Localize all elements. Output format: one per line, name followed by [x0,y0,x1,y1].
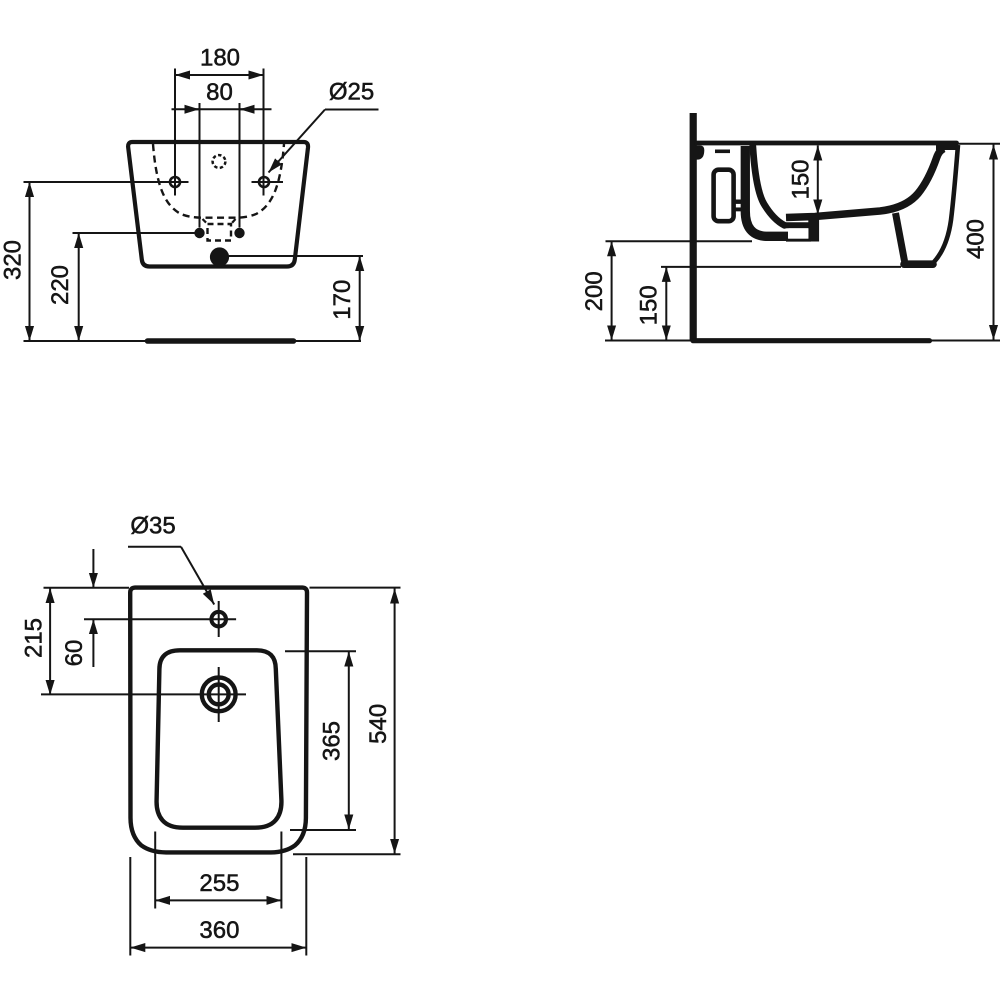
svg-text:540: 540 [365,704,392,744]
svg-text:320: 320 [0,240,27,280]
svg-text:80: 80 [206,79,233,106]
svg-text:400: 400 [962,219,989,259]
svg-text:200: 200 [581,271,608,311]
svg-text:180: 180 [200,45,240,72]
svg-text:255: 255 [199,870,239,897]
svg-text:Ø25: Ø25 [329,79,374,106]
svg-text:170: 170 [329,280,356,320]
svg-text:60: 60 [61,640,88,667]
svg-text:220: 220 [47,265,74,305]
svg-text:360: 360 [199,917,239,944]
svg-text:215: 215 [21,618,48,658]
svg-text:150: 150 [636,285,663,325]
svg-text:365: 365 [319,721,346,761]
svg-text:150: 150 [787,159,814,199]
svg-text:Ø35: Ø35 [130,513,175,540]
